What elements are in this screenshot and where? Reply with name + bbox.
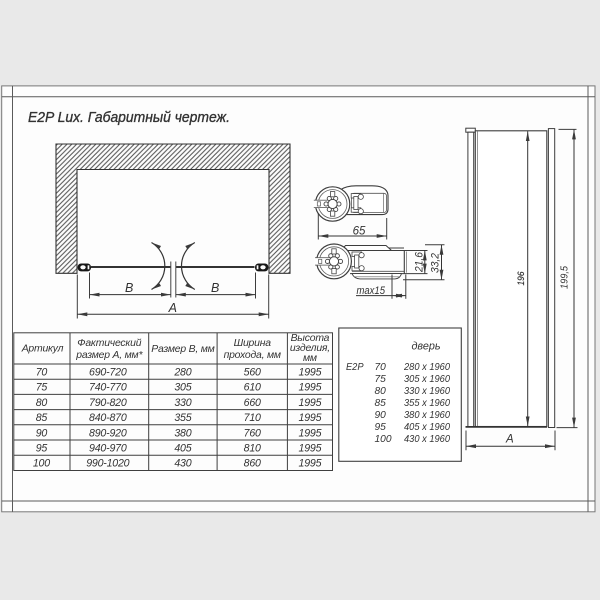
svg-text:890-920: 890-920 <box>89 427 127 439</box>
svg-text:E2P Lux. Габаритный чертеж.: E2P Lux. Габаритный чертеж. <box>28 109 230 126</box>
svg-text:B: B <box>125 281 133 295</box>
svg-text:A: A <box>505 434 514 446</box>
svg-text:85: 85 <box>36 412 48 424</box>
svg-text:196: 196 <box>516 271 527 286</box>
svg-text:330: 330 <box>174 397 191 409</box>
svg-text:70: 70 <box>375 362 387 373</box>
svg-text:940-970: 940-970 <box>89 443 127 455</box>
svg-text:430: 430 <box>174 458 191 470</box>
svg-text:70: 70 <box>36 367 48 379</box>
svg-text:Размер В, мм: Размер В, мм <box>151 344 214 355</box>
svg-text:1995: 1995 <box>299 427 322 439</box>
svg-text:790-820: 790-820 <box>89 397 127 409</box>
svg-text:A: A <box>168 301 177 315</box>
svg-text:860: 860 <box>244 458 261 470</box>
svg-text:1995: 1995 <box>299 367 322 379</box>
svg-text:33,2: 33,2 <box>430 253 442 273</box>
svg-text:430 x 1960: 430 x 1960 <box>404 434 450 445</box>
svg-text:1995: 1995 <box>299 412 322 424</box>
svg-text:E2P: E2P <box>346 362 364 373</box>
svg-text:100: 100 <box>33 458 50 470</box>
svg-text:1995: 1995 <box>299 382 322 394</box>
svg-text:405: 405 <box>174 443 191 455</box>
svg-text:дверь: дверь <box>411 341 440 353</box>
svg-text:95: 95 <box>375 422 387 433</box>
svg-text:760: 760 <box>244 427 261 439</box>
svg-text:560: 560 <box>244 367 261 379</box>
svg-text:мм: мм <box>303 353 317 364</box>
svg-text:80: 80 <box>375 386 387 397</box>
svg-text:355 x 1960: 355 x 1960 <box>404 398 450 409</box>
svg-text:1995: 1995 <box>299 397 322 409</box>
svg-text:199,5: 199,5 <box>559 266 570 289</box>
svg-text:710: 710 <box>244 412 261 424</box>
svg-text:Фактический: Фактический <box>77 338 141 349</box>
svg-text:305 x 1960: 305 x 1960 <box>404 374 450 385</box>
svg-text:65: 65 <box>353 226 366 238</box>
svg-text:610: 610 <box>244 382 261 394</box>
svg-text:405 x 1960: 405 x 1960 <box>404 422 450 433</box>
svg-text:380: 380 <box>174 427 191 439</box>
svg-text:75: 75 <box>36 382 48 394</box>
svg-text:размер А, мм*: размер А, мм* <box>75 350 143 361</box>
svg-text:305: 305 <box>174 382 191 394</box>
svg-text:380 x 1960: 380 x 1960 <box>404 410 450 421</box>
svg-text:B: B <box>211 281 219 295</box>
svg-text:840-870: 840-870 <box>89 412 127 424</box>
svg-text:1995: 1995 <box>299 443 322 455</box>
svg-text:75: 75 <box>375 374 387 385</box>
svg-text:690-720: 690-720 <box>89 367 127 379</box>
svg-text:660: 660 <box>244 397 261 409</box>
svg-text:740-770: 740-770 <box>89 382 127 394</box>
svg-text:95: 95 <box>36 443 48 455</box>
svg-text:прохода, мм: прохода, мм <box>224 350 281 361</box>
svg-text:1995: 1995 <box>299 458 322 470</box>
svg-text:90: 90 <box>36 427 48 439</box>
svg-text:max15: max15 <box>357 285 386 297</box>
svg-text:Артикул: Артикул <box>21 344 64 355</box>
svg-text:280: 280 <box>173 367 191 379</box>
svg-text:80: 80 <box>36 397 48 409</box>
svg-text:21,6: 21,6 <box>414 251 426 273</box>
svg-text:990-1020: 990-1020 <box>86 458 129 470</box>
svg-text:85: 85 <box>375 398 387 409</box>
svg-text:810: 810 <box>244 443 261 455</box>
svg-text:Ширина: Ширина <box>234 338 272 349</box>
svg-text:90: 90 <box>375 410 387 421</box>
svg-text:280 x 1960: 280 x 1960 <box>403 362 450 373</box>
svg-text:330 x 1960: 330 x 1960 <box>404 386 450 397</box>
svg-text:100: 100 <box>375 434 392 445</box>
svg-text:355: 355 <box>174 412 191 424</box>
